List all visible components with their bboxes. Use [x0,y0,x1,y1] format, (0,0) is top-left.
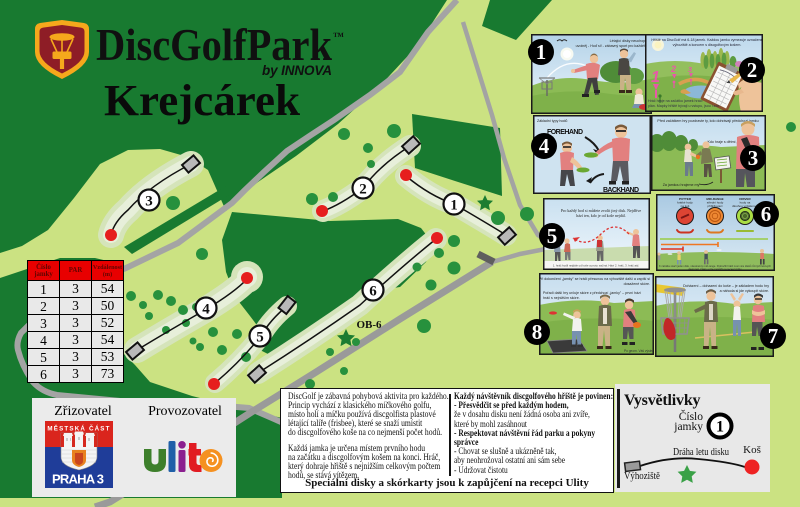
svg-text:3: 3 [145,194,153,210]
svg-text:Hráč hraje na začátku jamek hr: Hráč hraje na začátku jamek hrací [648,99,703,103]
svg-text:1: 1 [651,69,660,86]
svg-text:uvolněj - Hoď si! - zábavný sp: uvolněj - Hoď si! - zábavný sport pro ka… [576,44,648,48]
svg-text:Výhoziště: Výhoziště [624,470,660,482]
svg-text:FOREHAND: FOREHAND [547,129,583,136]
svg-text:Doházení – dohazení do koše –: Doházení – dohazení do koše – je základe… [683,284,769,288]
svg-text:plán. Mapky hřiště bývají u vs: plán. Mapky hřiště bývají u vstupu, jsou… [648,104,720,108]
svg-text:Hřiště na DiscGolf má 6-18 jam: Hřiště na DiscGolf má 6-18 jamek. Každou… [651,38,762,42]
svg-text:Krejcárek: Krejcárek [104,76,301,125]
svg-text:4: 4 [202,302,210,318]
svg-text:2: 2 [670,64,676,74]
svg-text:Dráha letu disku: Dráha letu disku [673,446,729,458]
svg-text:™: ™ [333,31,344,43]
svg-text:5: 5 [256,330,264,346]
svg-text:PRAHA 3: PRAHA 3 [52,472,104,487]
svg-text:výhoziště a koncem s discgolfo: výhoziště a koncem s discgolfovým košem. [673,43,742,47]
svg-text:Po geom. Váš výsledek hry...: Po geom. Váš výsledek hry... [624,349,654,353]
svg-text:a náhoda si jde vykoupit skóre: a náhoda si jde vykoupit skóre. [720,289,769,293]
svg-text:OB-6: OB-6 [356,319,382,331]
svg-text:Koš: Koš [743,444,761,456]
svg-text:2: 2 [359,182,367,198]
svg-text:MĚSTSKÁ ČÁST: MĚSTSKÁ ČÁST [47,425,110,433]
svg-text:1. hráč hodil nejdále od koše: 1. hráč hodil nejdále od koše a proto za… [553,264,640,268]
svg-text:1: 1 [716,419,724,436]
svg-text:1: 1 [450,198,458,214]
svg-text:3: 3 [688,67,692,74]
svg-text:Létající disky neuchopíš: Létající disky neuchopíš [610,39,649,43]
svg-text:Pořadí další hry určuje skóre: Pořadí další hry určuje skóre z předchoz… [543,291,641,295]
svg-text:dosažené skóre.: dosažené skóre. [624,282,650,286]
svg-text:hráč s nejnižším skóre.: hráč s nejnižším skóre. [543,296,580,300]
svg-text:Základní typy hodů: Základní typy hodů [537,119,567,123]
svg-text:Při dokončení „jamky" se hráči: Při dokončení „jamky" se hráči přesunou … [539,277,650,281]
svg-text:6: 6 [369,284,377,300]
svg-text:Za jamkou hrajeme my: Za jamkou hrajeme my [663,183,700,187]
